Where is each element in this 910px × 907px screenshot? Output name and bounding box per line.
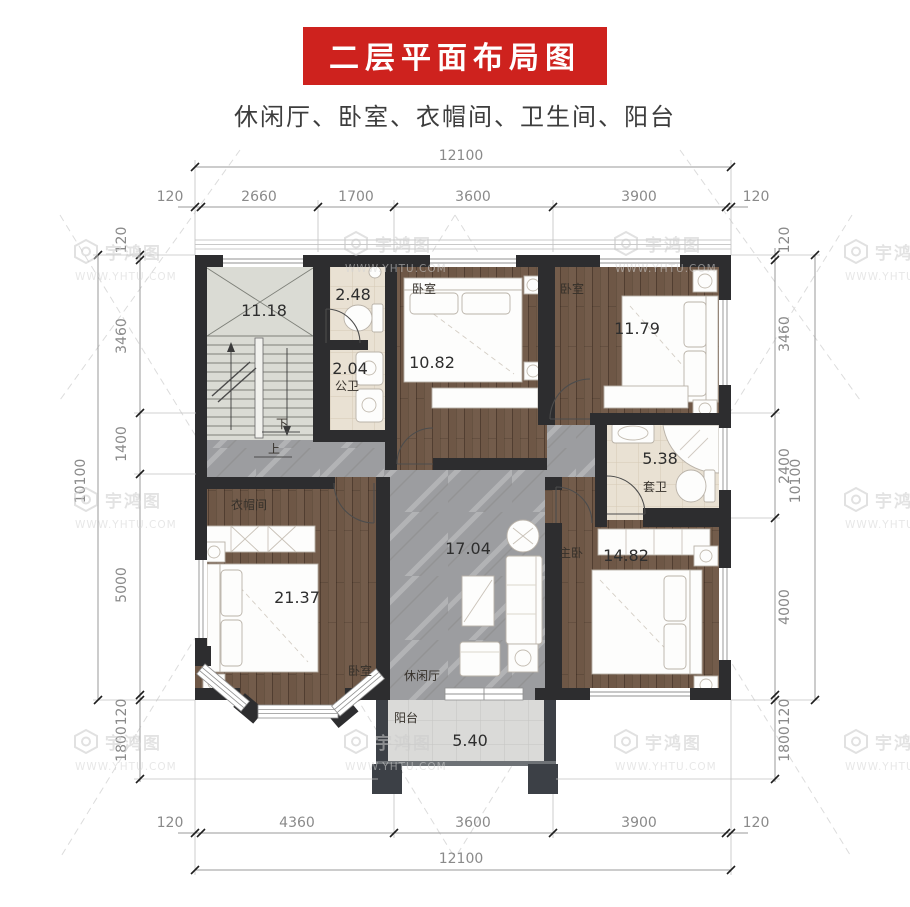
svg-text:宇鸿图: 宇鸿图	[875, 733, 910, 754]
svg-text:WWW.YHTU.COM: WWW.YHTU.COM	[845, 761, 910, 773]
dim-right-3: 4000	[777, 589, 793, 625]
svg-text:宇鸿图: 宇鸿图	[875, 243, 910, 264]
window-right-master	[719, 568, 731, 660]
watermark: 宇鸿图 WWW.YHTU.COM	[845, 730, 910, 773]
svg-text:WWW.YHTU.COM: WWW.YHTU.COM	[845, 519, 910, 531]
balcony-name: 阳台	[394, 710, 418, 725]
dim-bottom-4: 120	[743, 815, 770, 831]
dim-top-5: 120	[743, 189, 770, 205]
dim-top-overall: 12100	[439, 148, 484, 164]
dim-top-4: 3900	[621, 189, 657, 205]
dim-left-3: 5000	[114, 567, 130, 603]
svg-text:WWW.YHTU.COM: WWW.YHTU.COM	[75, 761, 177, 773]
page-header: 二层平面布局图 休闲厅、卧室、衣帽间、卫生间、阳台	[0, 0, 910, 132]
bedroom-c-name: 卧室	[348, 663, 372, 678]
watermark: 宇鸿图 WWW.YHTU.COM	[845, 488, 910, 531]
balcony-sliding-door	[445, 688, 523, 700]
wc-lower-area: 2.04	[332, 359, 368, 378]
bedroom-b-area: 11.79	[614, 319, 660, 338]
dim-bottom-3: 3900	[621, 815, 657, 831]
svg-text:宇鸿图: 宇鸿图	[645, 235, 702, 256]
dim-top-2: 1700	[338, 189, 374, 205]
svg-text:宇鸿图: 宇鸿图	[875, 491, 910, 512]
stairwell-area: 11.18	[241, 301, 287, 320]
svg-text:宇鸿图: 宇鸿图	[645, 733, 702, 754]
svg-text:宇鸿图: 宇鸿图	[105, 491, 162, 512]
stairs-down-label: 下	[276, 417, 288, 431]
dim-right-1: 3460	[777, 316, 793, 352]
svg-text:宇鸿图: 宇鸿图	[375, 733, 432, 754]
wc-upper-area: 2.48	[335, 285, 371, 304]
dim-bottom-overall: 12100	[439, 851, 484, 867]
watermark: 宇鸿图 WWW.YHTU.COM	[75, 730, 177, 773]
svg-text:WWW.YHTU.COM: WWW.YHTU.COM	[75, 519, 177, 531]
window-bottom-master	[590, 688, 690, 700]
svg-text:WWW.YHTU.COM: WWW.YHTU.COM	[345, 263, 447, 275]
svg-text:WWW.YHTU.COM: WWW.YHTU.COM	[845, 271, 910, 283]
dim-right-2: 2400	[777, 448, 793, 484]
watermark: 宇鸿图 WWW.YHTU.COM	[845, 240, 910, 283]
bedroom-a-area: 10.82	[409, 353, 455, 372]
dim-top-0: 120	[157, 189, 184, 205]
watermark: 宇鸿图 WWW.YHTU.COM	[75, 240, 177, 283]
svg-text:WWW.YHTU.COM: WWW.YHTU.COM	[75, 271, 177, 283]
cloakroom-name: 衣帽间	[231, 497, 267, 512]
watermark: 宇鸿图 WWW.YHTU.COM	[75, 488, 177, 531]
dim-left-4: 120	[114, 699, 130, 726]
watermark: 宇鸿图 WWW.YHTU.COM	[615, 730, 717, 773]
balcony-area: 5.40	[452, 731, 488, 750]
dim-left-2: 1400	[114, 426, 130, 462]
lounge-name: 休闲厅	[404, 669, 440, 683]
svg-text:WWW.YHTU.COM: WWW.YHTU.COM	[615, 263, 717, 275]
dim-bottom-0: 120	[157, 815, 184, 831]
watermark: 宇鸿图 WWW.YHTU.COM	[345, 232, 447, 275]
dim-right-0: 120	[777, 227, 793, 254]
window-right-bedroom-b	[719, 300, 731, 385]
bay-window-center	[258, 705, 338, 718]
lounge-area: 17.04	[445, 539, 491, 558]
floor-plan-canvas: 11.18 下 上 2.48 2.04 公卫 卧室 10.82 卧室 11.79…	[0, 0, 910, 907]
window-right-ensuite	[719, 428, 731, 490]
dim-left-1: 3460	[114, 318, 130, 354]
dim-bottom-2: 3600	[455, 815, 491, 831]
dim-top-1: 2660	[241, 189, 277, 205]
stairs-up-label: 上	[268, 442, 280, 456]
dim-bottom-1: 4360	[279, 815, 315, 831]
wc-lower-name: 公卫	[335, 379, 359, 393]
bed-bedroom-c	[203, 526, 318, 692]
watermark: 宇鸿图 WWW.YHTU.COM	[615, 232, 717, 275]
dim-right-5: 1800	[777, 726, 793, 762]
bedroom-b-name: 卧室	[560, 281, 584, 296]
ensuite-area: 5.38	[642, 449, 678, 468]
page-title: 二层平面布局图	[303, 27, 607, 85]
bedroom-c-area: 21.37	[274, 588, 320, 607]
master-name: 主卧	[559, 546, 583, 560]
dim-right-4: 120	[777, 699, 793, 726]
bedroom-a-name: 卧室	[412, 281, 436, 296]
svg-text:WWW.YHTU.COM: WWW.YHTU.COM	[345, 761, 447, 773]
svg-text:WWW.YHTU.COM: WWW.YHTU.COM	[615, 761, 717, 773]
watermark: 宇鸿图 WWW.YHTU.COM	[345, 730, 447, 773]
page-subtitle: 休闲厅、卧室、衣帽间、卫生间、阳台	[0, 97, 910, 132]
ensuite-name: 套卫	[643, 480, 667, 494]
master-area: 14.82	[603, 546, 649, 565]
window-top-stairs	[223, 255, 303, 267]
svg-text:宇鸿图: 宇鸿图	[105, 243, 162, 264]
svg-text:宇鸿图: 宇鸿图	[105, 733, 162, 754]
svg-text:宇鸿图: 宇鸿图	[375, 235, 432, 256]
dim-top-3: 3600	[455, 189, 491, 205]
window-left-bedroom-c	[195, 560, 207, 638]
